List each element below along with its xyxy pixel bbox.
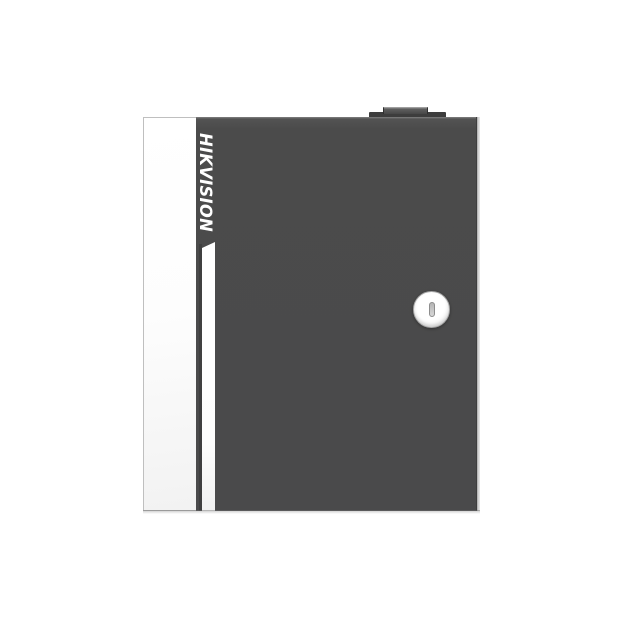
keyhole-icon [429,302,435,317]
stripe-groove-shadow [199,244,202,511]
door-edge-panel [143,117,196,511]
product-photo: HIKVISION [0,0,620,620]
device-enclosure: HIKVISION [143,117,480,511]
bottom-edge-shadow [143,511,480,514]
top-hinge-tab-cap [383,107,428,114]
right-side-edge-highlight [477,117,480,511]
brand-logo: HIKVISION [196,133,214,241]
accent-stripe [202,242,215,511]
bottom-edge-line [143,510,480,511]
cam-lock [413,291,450,328]
